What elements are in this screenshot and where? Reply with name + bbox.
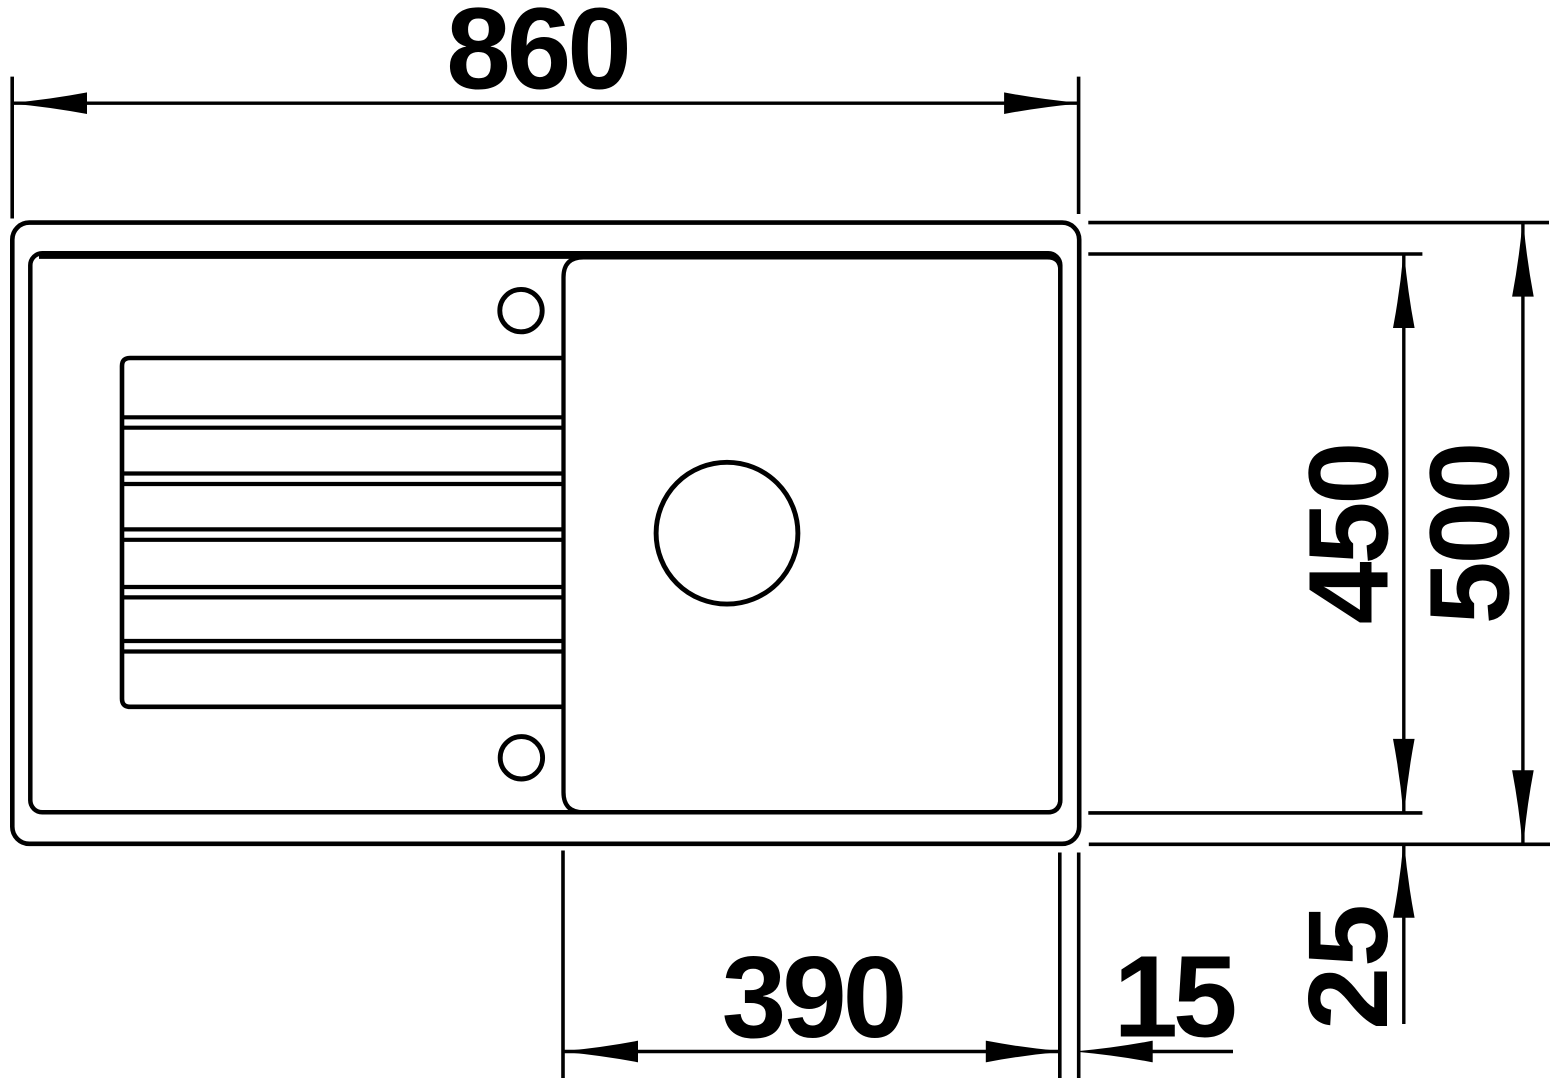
svg-text:500: 500 [1407, 445, 1533, 625]
svg-text:860: 860 [446, 0, 628, 114]
svg-text:450: 450 [1285, 445, 1411, 625]
svg-text:25: 25 [1285, 904, 1411, 1030]
svg-text:390: 390 [722, 932, 904, 1062]
svg-text:15: 15 [1113, 931, 1235, 1061]
